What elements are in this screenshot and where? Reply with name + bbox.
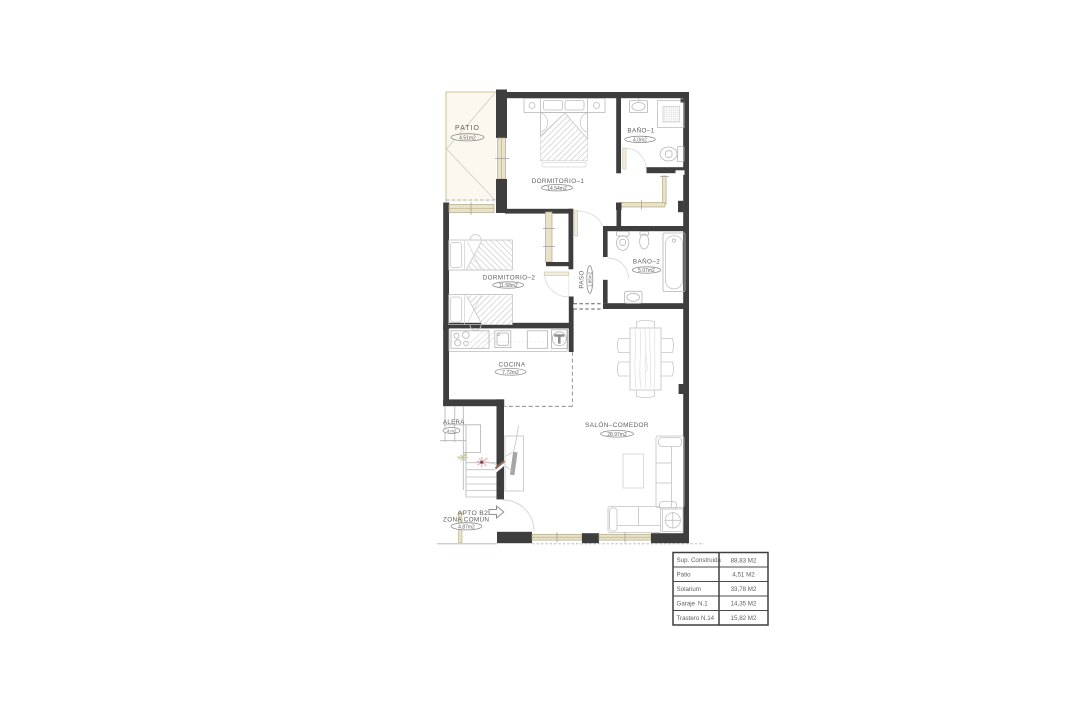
svg-text:14,35 M2: 14,35 M2 [731,601,757,608]
svg-text:BAÑO–1: BAÑO–1 [627,126,654,135]
svg-text:11.68m2: 11.68m2 [499,283,518,289]
svg-text:SALÓN–COMEDOR: SALÓN–COMEDOR [585,420,649,429]
svg-text:7.72m2: 7.72m2 [502,370,519,376]
svg-text:Sup. Construida: Sup. Construida [677,557,722,564]
svg-text:88,83 M2: 88,83 M2 [731,558,757,565]
svg-text:4.m2: 4.m2 [447,428,457,433]
svg-text:DORMITORIO–2: DORMITORIO–2 [483,275,536,282]
svg-text:ZONA COMÚN: ZONA COMÚN [443,515,489,524]
svg-text:4.87m2: 4.87m2 [458,525,475,531]
svg-text:Solarium: Solarium [677,586,701,593]
svg-text:4.51m2: 4.51m2 [459,136,476,142]
svg-text:28.97m2: 28.97m2 [607,432,627,438]
svg-text:N.1: N.1 [698,601,708,608]
svg-text:COCINA: COCINA [499,362,526,369]
svg-text:15,82 M2: 15,82 M2 [731,615,757,622]
svg-text:14.54m2: 14.54m2 [547,186,567,192]
svg-text:PASO: PASO [579,270,586,288]
svg-text:1.85m2: 1.85m2 [588,271,593,287]
svg-text:PATIO: PATIO [455,125,480,132]
svg-text:4.0m2: 4.0m2 [633,138,647,144]
svg-text:Garaje: Garaje [677,601,696,608]
svg-text:DORMITORIO–1: DORMITORIO–1 [532,178,585,185]
svg-text:4,51 M2: 4,51 M2 [732,572,755,579]
svg-text:BAÑO–2: BAÑO–2 [633,257,660,266]
svg-text:5.07m2: 5.07m2 [638,268,655,274]
svg-text:ALERA: ALERA [443,420,465,426]
svg-text:Patio: Patio [677,572,692,579]
svg-text:Trastero N.14: Trastero N.14 [677,615,715,622]
svg-text:33,78 M2: 33,78 M2 [731,586,757,593]
